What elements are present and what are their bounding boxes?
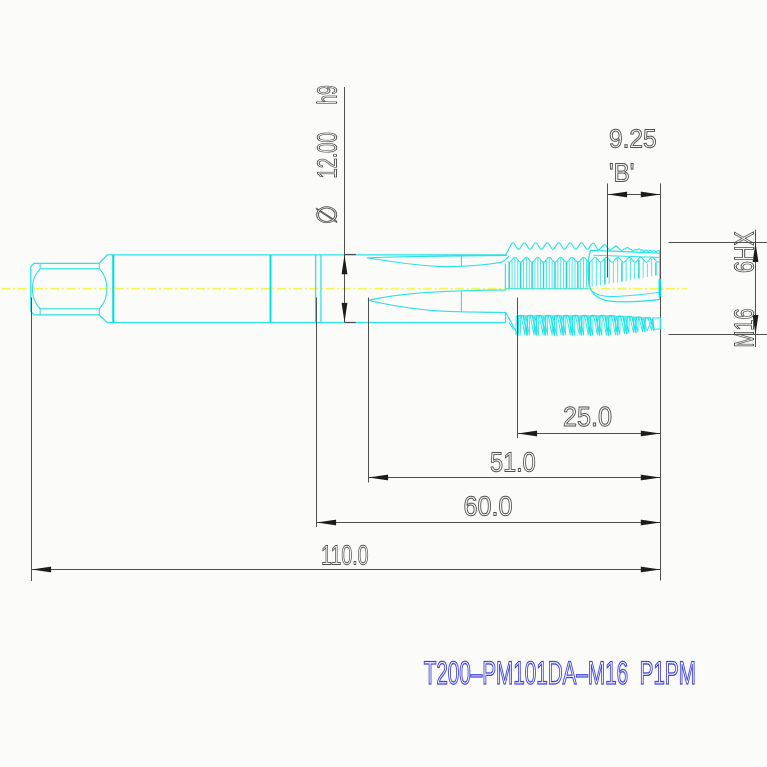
svg-text:∅: ∅ bbox=[312, 205, 343, 225]
svg-text:6HX: 6HX bbox=[729, 231, 760, 273]
svg-text:60.0: 60.0 bbox=[464, 490, 513, 522]
svg-text:h9: h9 bbox=[311, 85, 342, 104]
svg-text:25.0: 25.0 bbox=[563, 401, 612, 433]
svg-text:51.0: 51.0 bbox=[490, 448, 536, 478]
svg-text:T200–PM101DA–M16 P1PM: T200–PM101DA–M16 P1PM bbox=[424, 655, 696, 691]
svg-text:12.00: 12.00 bbox=[313, 132, 344, 178]
svg-text:110.0: 110.0 bbox=[321, 540, 369, 571]
svg-text:M16: M16 bbox=[729, 308, 760, 347]
svg-text:9.25: 9.25 bbox=[609, 125, 657, 154]
svg-text:'B': 'B' bbox=[609, 159, 634, 188]
